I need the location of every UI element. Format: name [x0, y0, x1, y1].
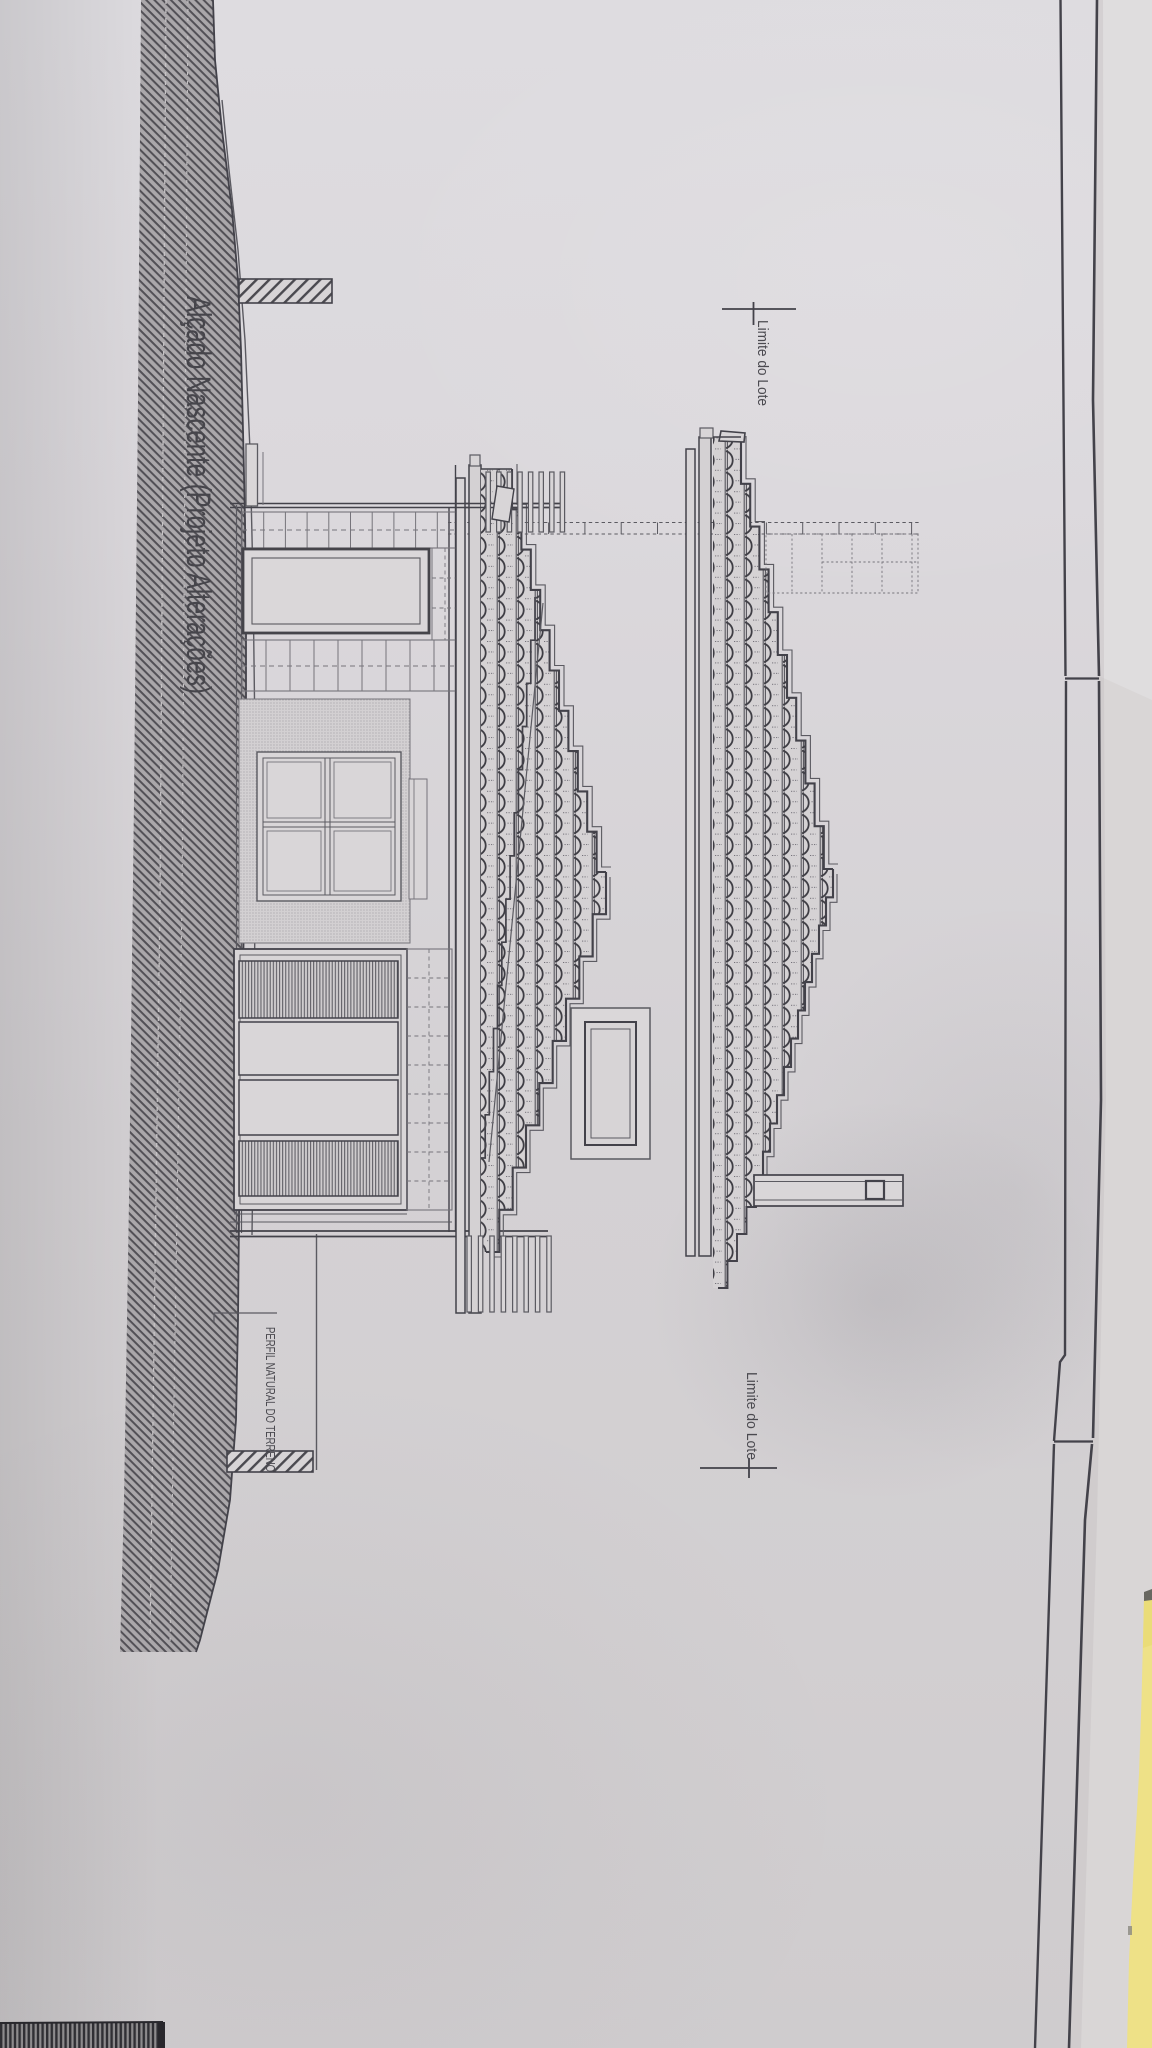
svg-text:Alçado Nascente (Projeto Alter: Alçado Nascente (Projeto Alterações) — [179, 296, 217, 694]
svg-text:PERFIL NATURAL DO TERRENO: PERFIL NATURAL DO TERRENO — [263, 1327, 277, 1472]
svg-text:Limite do Lote: Limite do Lote — [743, 1372, 760, 1460]
svg-text:Limite do Lote: Limite do Lote — [754, 320, 771, 406]
